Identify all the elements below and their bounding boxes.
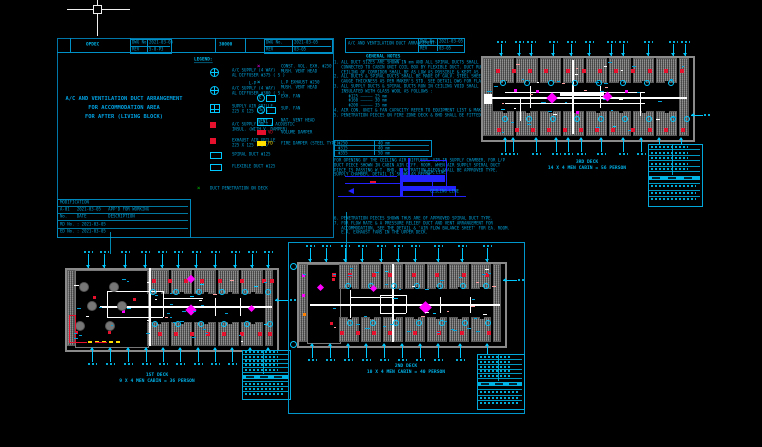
callout-arrow: [230, 347, 234, 350]
annotation-mark: [472, 299, 475, 300]
annotation-mark: [213, 294, 217, 295]
exhaust-grille-marker: [174, 332, 178, 336]
callout-arrow: [196, 347, 200, 350]
annotation-mark: [487, 91, 491, 92]
supply-duct: [392, 264, 394, 342]
supply-duct: [484, 94, 492, 104]
annotation-mark: [437, 332, 440, 333]
supply-duct: [380, 313, 406, 314]
exhaust-grille-marker: [258, 332, 262, 336]
supply-duct: [350, 297, 394, 298]
exhaust-grille-marker: [579, 128, 583, 132]
annotation-mark: [553, 114, 557, 115]
callout-text: [121, 251, 130, 253]
annotation-mark: [86, 316, 89, 317]
diffuser-marker: [622, 116, 628, 122]
diffuser-marker: [548, 80, 554, 86]
header-cell-divider: [130, 38, 131, 52]
vent-label: VENT: [258, 119, 268, 124]
diffuser-marker: [393, 320, 399, 326]
org-label: OPDEC: [86, 42, 99, 47]
callout-text: [228, 363, 237, 365]
callout-arrow: [161, 347, 165, 350]
dwg-no-label: DWG No.: [132, 40, 149, 45]
exhaust-grille-marker: [631, 128, 635, 132]
annotation-mark: [604, 66, 608, 67]
callout-stem: [110, 348, 111, 362]
callout-text: [411, 245, 420, 247]
callout-arrow: [343, 259, 347, 262]
drawing-title-line1: A/C AND VENTILATION DUCT ARRANGEMENT: [58, 96, 190, 102]
fan-letter: S: [259, 107, 261, 112]
supply-duct: [380, 295, 406, 296]
annotation-mark: [584, 90, 587, 91]
annotation-mark: [165, 317, 168, 318]
cad-canvas[interactable]: OPDEC 30000 A/C AND VENTILATION DUCT ARR…: [0, 0, 762, 447]
diffuser-marker: [265, 289, 271, 295]
annotation-mark: [193, 311, 196, 312]
duct-detail-segment: [403, 175, 445, 182]
annotation-mark: [254, 286, 257, 287]
callout-stem: [330, 344, 331, 358]
annotation-mark: [576, 68, 579, 69]
cabin-door: [251, 322, 255, 324]
annotation-mark: [658, 101, 661, 102]
title-block-band-dash: [495, 383, 503, 385]
diffuser-marker: [483, 283, 489, 289]
exhaust-grille-marker: [152, 279, 156, 283]
callout-arrow: [123, 265, 127, 268]
legend-right-text: MUSH. VENT HEAD: [281, 85, 317, 90]
callout-stem: [601, 138, 602, 152]
exhaust-grille-marker: [218, 279, 222, 283]
callout-arrow: [308, 259, 312, 262]
annotation-mark: [595, 82, 599, 83]
title-block-line: [478, 373, 522, 374]
diffuser-marker: [460, 283, 466, 289]
callout-text: [142, 363, 151, 365]
small-vent-marker: [536, 90, 539, 93]
exhaust-grille-marker: [528, 69, 532, 73]
annotation-mark: [170, 304, 173, 305]
annotation-mark: [180, 321, 184, 322]
title-block-line: [478, 378, 522, 379]
small-vent-marker: [625, 90, 628, 93]
annotation-mark: [383, 326, 386, 327]
size-table-dia: Φ355: [338, 151, 348, 156]
callout-arrow: [310, 343, 314, 346]
callout-arrow: [485, 259, 489, 262]
title-block-line: [243, 386, 288, 387]
small-grille-marker: [133, 298, 136, 301]
callout-text: [308, 359, 317, 361]
callout-arrow: [396, 259, 400, 262]
rev-value: 03-05: [439, 46, 451, 51]
annotation-mark: [604, 83, 608, 84]
callout-stem: [623, 138, 624, 152]
annotation-mark: [170, 293, 172, 294]
annotation-mark: [511, 122, 515, 123]
size-table-divider: [374, 140, 375, 155]
callout-arrow: [346, 343, 350, 346]
diffuser-marker: [668, 80, 674, 86]
title-block-line: [649, 183, 700, 184]
callout-text: [100, 251, 109, 253]
annotation-mark: [390, 324, 392, 325]
callout-text: [88, 363, 97, 365]
title-block-text-row: [651, 198, 696, 200]
plan-caption-deck: 2ND DECK: [351, 363, 461, 368]
duct-detail-segment: [400, 168, 403, 196]
cabin-door: [157, 292, 161, 294]
legend-bottom-text: DUCT PENETRATION ON DECK: [210, 186, 268, 191]
diffuser-marker: [345, 283, 351, 289]
diffuser-4way-icon: [210, 68, 219, 77]
diffuser-marker: [574, 116, 580, 122]
callout-stem: [163, 348, 164, 362]
annotation-mark: [385, 271, 388, 272]
callout-arrow: [382, 343, 386, 346]
callout-stem: [581, 138, 582, 152]
exhaust-grille-marker: [680, 69, 684, 73]
callout-text: [211, 251, 220, 253]
duct-detail-segment: [345, 183, 403, 184]
callout-text: [607, 41, 616, 43]
cabin-door: [503, 111, 507, 113]
annotation-mark: [502, 103, 504, 104]
header-cell-divider: [70, 38, 71, 52]
callout-arrow: [364, 343, 368, 346]
callout-stem: [180, 348, 181, 362]
callout-arrow: [671, 53, 675, 56]
title-block-line: [478, 389, 522, 390]
callout-text: [306, 245, 315, 247]
exhaust-grille-marker: [531, 128, 535, 132]
annotation-mark: [482, 274, 485, 275]
cabin-block: [609, 111, 630, 136]
title-block-line: [478, 359, 522, 360]
callout-stem: [232, 348, 233, 362]
title-block-band-dash: [668, 177, 676, 179]
callout-stem: [348, 344, 349, 358]
exhaust-grille-marker: [340, 331, 344, 335]
callout-stem: [568, 138, 569, 152]
callout-text: [192, 251, 201, 253]
annotation-mark: [239, 335, 241, 336]
diffuser-marker: [416, 320, 422, 326]
red-duct-line: [95, 342, 107, 343]
callout-text: [231, 251, 240, 253]
small-grille-marker: [108, 331, 111, 334]
title-block-text-row: [480, 366, 512, 368]
callout-text: [377, 245, 386, 247]
diffuser-marker: [502, 116, 508, 122]
exhaust-grille-marker: [515, 128, 519, 132]
title-block-line: [478, 395, 522, 396]
green-x-icon: ✕: [197, 185, 200, 191]
callout-arrow: [213, 265, 217, 268]
callout-arrow: [579, 137, 583, 140]
annotation-mark: [201, 305, 204, 306]
callout-arrow: [144, 347, 148, 350]
diffuser-marker: [219, 289, 225, 295]
callout-arrow: [503, 278, 506, 282]
small-vent-marker: [302, 294, 305, 297]
diffuser-marker: [347, 320, 353, 326]
duct-detail-segment: [408, 158, 410, 175]
supply-duct: [505, 103, 645, 104]
annotation-mark: [385, 284, 388, 285]
callout-text: [416, 359, 425, 361]
section-connector-line: [110, 232, 111, 254]
annotation-mark: [147, 320, 151, 321]
cabin-door: [436, 317, 440, 319]
supply-duct: [240, 298, 241, 316]
annotation-mark: [199, 300, 202, 301]
plan-caption-count: 9 X 4 MEN CABIN = 36 PERSON: [102, 378, 212, 383]
annotation-mark: [170, 317, 172, 318]
annotation-mark: [433, 313, 436, 314]
annotation-mark: [530, 94, 533, 95]
cabin-block: [586, 111, 607, 136]
exhaust-grille-marker: [372, 331, 376, 335]
title-block-text-row: [245, 388, 284, 390]
callout-arrow: [599, 137, 603, 140]
header-cell-divider: [215, 38, 216, 52]
annotation-mark: [575, 74, 578, 75]
annotation-mark: [407, 331, 410, 332]
magenta-x-icon: ✕: [257, 63, 260, 69]
callout-arrow: [503, 137, 507, 140]
diffuser-marker: [646, 116, 652, 122]
callout-stem: [460, 344, 461, 358]
title-block-text-row: [245, 364, 278, 366]
callout-text: [644, 41, 653, 43]
exhaust-grille-marker: [611, 128, 615, 132]
note-line: 1. ALL DUCT SIZES ARE SHOWN IN mm AND AL…: [334, 60, 500, 65]
title-block-line: [649, 171, 700, 172]
diffuser-marker: [244, 321, 250, 327]
annotation-mark: [74, 285, 78, 286]
fd-box-icon: [257, 141, 266, 146]
cabin-door: [180, 292, 184, 294]
dwg-no-value: 2021-03-05: [294, 40, 318, 45]
diffuser-marker: [684, 116, 690, 122]
supply-duct: [163, 298, 203, 299]
callout-text: [564, 153, 573, 155]
callout-text: [248, 251, 257, 253]
callout-text: [344, 359, 353, 361]
exhaust-grille-marker: [648, 69, 652, 73]
supply-duct: [163, 291, 164, 317]
title-block-text-row: [480, 361, 512, 363]
exhaust-grille-marker: [547, 128, 551, 132]
callout-arrow: [108, 347, 112, 350]
title-block-band-dash: [481, 383, 489, 385]
annotation-mark: [348, 275, 352, 276]
duct-detail-segment: [345, 176, 397, 177]
callout-arrow: [178, 347, 182, 350]
annotation-mark: [155, 299, 158, 300]
legend-left-text: A/C SUPPLY (4 WAY): [232, 68, 275, 73]
callout-arrow: [143, 265, 147, 268]
callout-arrow: [657, 137, 661, 140]
callout-text: [434, 359, 443, 361]
annotation-mark: [682, 66, 684, 67]
callout-arrow: [213, 347, 217, 350]
callout-text: [515, 41, 524, 43]
callout-stem: [536, 138, 537, 152]
callout-arrow: [266, 265, 270, 268]
callout-arrow: [621, 137, 625, 140]
drawing-code: 30000: [219, 42, 232, 47]
annotation-mark: [608, 62, 612, 63]
callout-arrow: [436, 343, 440, 346]
annotation-mark: [502, 132, 504, 133]
title-block-band-dash: [652, 177, 660, 179]
annotation-mark: [541, 102, 545, 103]
diffuser-marker: [500, 80, 506, 86]
callout-arrow: [587, 53, 591, 56]
ceiling-line-label: CEILING LINE: [430, 189, 459, 194]
diffuser-marker: [572, 80, 578, 86]
annotation-mark: [334, 327, 336, 328]
supply-duct: [487, 97, 687, 99]
legend-right-text: L.P EXHAUST Φ250: [281, 80, 320, 85]
annotation-mark: [79, 335, 82, 336]
callout-arrow: [160, 265, 164, 268]
annotation-mark: [74, 338, 78, 339]
exhaust-grille-marker: [158, 332, 162, 336]
legend-left-text: FLEXIBLE DUCT Φ125: [232, 164, 275, 169]
header-table-divider: [292, 39, 293, 52]
exhaust-grille-marker: [631, 69, 635, 73]
note-mid-line: DUCT PIECE SHOWN IN CABIN AIR DIFF. ROOM…: [334, 163, 500, 168]
title-block-line: [649, 155, 700, 156]
note-end-line: E.A. EXHAUST FANS IN THE UPPER DECK.: [334, 230, 428, 235]
grid-datum-bubble: [290, 263, 297, 270]
cabin-door: [526, 111, 530, 113]
callout-text: [518, 279, 526, 281]
diffuser-marker: [620, 80, 626, 86]
callout-arrow: [646, 53, 650, 56]
title-block-line: [649, 160, 700, 161]
callout-text: [552, 153, 561, 155]
revision-row: MODIFICATION: [60, 200, 89, 205]
annotation-mark: [122, 279, 126, 280]
diffuser-marker: [242, 289, 248, 295]
exhaust-grille-marker: [598, 69, 602, 73]
sheet2-title: A/C AND VENTILATION DUCT ARRANGEMENT: [348, 41, 418, 46]
callout-text: [704, 114, 712, 116]
fire-damper-mark: [116, 341, 120, 343]
cabin-door: [204, 322, 208, 324]
mess-table: [118, 302, 126, 310]
grille-icon: [210, 104, 220, 113]
annotation-mark: [445, 321, 447, 322]
annotation-mark: [399, 289, 401, 290]
legend-heading: LEGEND:: [194, 57, 213, 63]
callout-text: [567, 41, 576, 43]
duct-box-icon: [210, 152, 222, 159]
callout-arrow: [250, 265, 254, 268]
supply-duct: [572, 60, 574, 134]
title-block-text-row: [480, 375, 512, 377]
callout-arrow: [194, 265, 198, 268]
annotation-mark: [146, 333, 150, 334]
annotation-mark: [611, 110, 613, 111]
annotation-mark: [522, 79, 524, 80]
diffuser-marker: [221, 321, 227, 327]
annotation-mark: [203, 329, 206, 330]
exhaust-grille-marker: [648, 128, 652, 132]
title-block-text-row: [651, 152, 688, 154]
dwg-no-label: DWG No.: [420, 39, 437, 44]
callout-arrow: [485, 343, 489, 346]
legend-right-text: SUP. FAN: [281, 106, 300, 111]
mess-table: [110, 283, 118, 291]
annotation-mark: [628, 130, 631, 131]
supply-duct: [107, 317, 163, 318]
diffuser-4way-icon: [210, 86, 219, 95]
supply-duct: [350, 290, 351, 318]
note-line: 4. AIR CON. UNIT & FAN CAPACITY REFER TO…: [334, 108, 498, 113]
note-end-line: 7. FOR FLOW RATE & A PRESSURE RELIEF DUC…: [334, 221, 493, 226]
mess-table: [80, 283, 88, 291]
annotation-mark: [230, 280, 234, 281]
title-block-text-row: [245, 383, 284, 385]
callout-arrow: [529, 53, 533, 56]
diffuser-marker: [524, 80, 530, 86]
small-vent-marker: [122, 310, 125, 313]
callout-text: [669, 41, 678, 43]
diffuser-marker: [150, 289, 156, 295]
annotation-mark: [672, 117, 676, 118]
damper-label: FD: [268, 141, 273, 146]
small-vent-marker: [514, 89, 517, 92]
callout-arrow: [499, 53, 503, 56]
annotation-mark: [656, 119, 660, 120]
small-grille-marker: [330, 322, 333, 325]
mess-table: [76, 322, 84, 330]
diffuser-marker: [598, 116, 604, 122]
annotation-mark: [167, 313, 170, 314]
annotation-mark: [333, 274, 336, 275]
title-block-text-row: [651, 157, 688, 159]
title-block-text-row: [651, 185, 696, 187]
exhaust-grille-marker: [168, 279, 172, 283]
legend-right-text: NAT. VENT HEAD: [281, 118, 315, 123]
callout-text: [158, 251, 167, 253]
legend-right-text: MUSH. VENT HEAD: [281, 69, 317, 74]
callout-text: [532, 153, 541, 155]
deck-line-label: DECK LINE: [424, 170, 446, 175]
callout-text: [84, 251, 93, 253]
diffuser-marker: [437, 283, 443, 289]
annotation-mark: [74, 333, 77, 334]
duct-detail-arrow: [348, 188, 354, 194]
supply-duct: [640, 92, 641, 116]
title-block-band-dash: [684, 177, 692, 179]
title-block-text-row: [480, 402, 518, 404]
annotation-mark: [147, 282, 150, 283]
exhaust-grille-marker: [614, 69, 618, 73]
exhaust-grille-marker: [413, 331, 417, 335]
annotation-mark: [613, 126, 616, 127]
annotation-mark: [537, 82, 540, 83]
exhaust-grille-marker: [372, 273, 376, 277]
legend-right-text: CONST. VOL. EXH. Φ250: [281, 64, 332, 69]
